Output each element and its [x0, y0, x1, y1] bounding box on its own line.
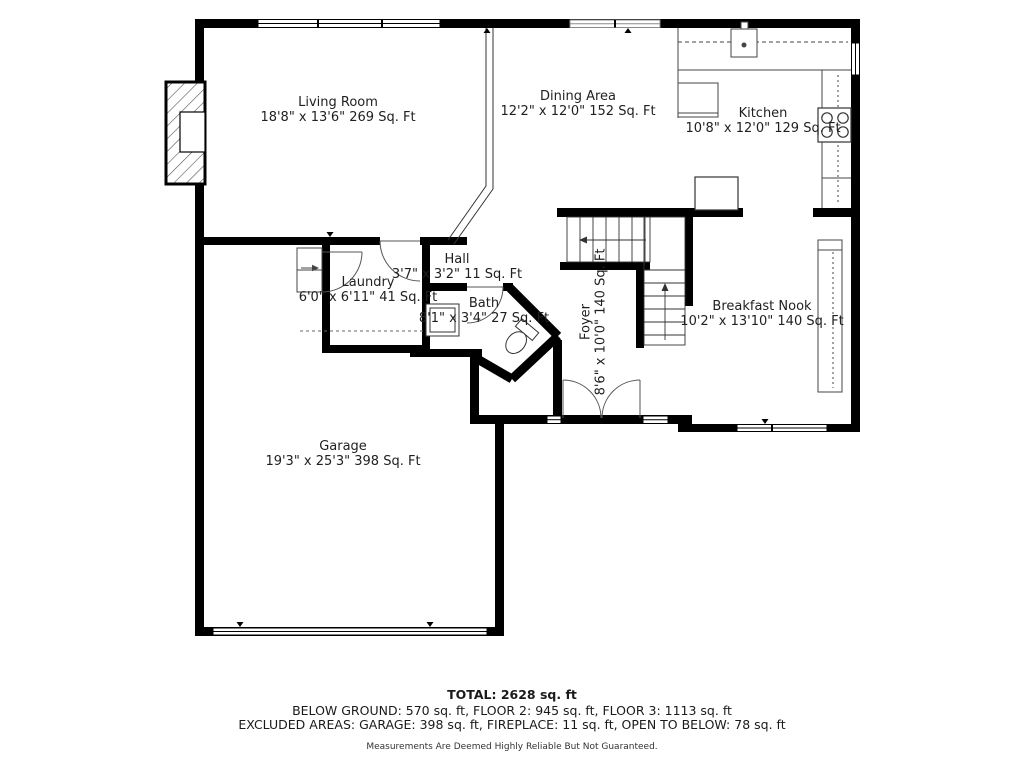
stairs-arrow-left [579, 237, 646, 244]
room-label-breakfast-nook: Breakfast Nook 10'2" x 13'10" 140 Sq. Ft [680, 300, 843, 329]
room-name: Kitchen [739, 106, 788, 121]
fireplace [166, 82, 205, 184]
garage-door [213, 628, 487, 635]
room-dims: 12'2" x 12'0" 152 Sq. Ft [500, 105, 655, 120]
nook-window [737, 425, 827, 432]
room-name: Garage [319, 439, 367, 454]
room-dims: 10'8" x 12'0" 129 Sq. Ft [685, 122, 840, 137]
room-name: Hall [445, 252, 470, 267]
room-dims: 19'3" x 25'3" 398 Sq. Ft [265, 455, 420, 470]
floor-plan-page: Living Room 18'8" x 13'6" 269 Sq. Ft Din… [0, 0, 1024, 768]
kitchen-window [852, 43, 860, 75]
living-room-window [258, 20, 440, 28]
floor-areas-text: BELOW GROUND: 570 sq. ft, FLOOR 2: 945 s… [0, 703, 1024, 718]
room-name: Living Room [298, 95, 378, 110]
railing [448, 28, 493, 244]
excluded-areas-text: EXCLUDED AREAS: GARAGE: 398 sq. ft, FIRE… [0, 717, 1024, 732]
room-label-dining-area: Dining Area 12'2" x 12'0" 152 Sq. Ft [500, 90, 655, 119]
stairs-arrow-up [662, 283, 669, 340]
room-label-foyer: Foyer 8'6" x 10'0" 140 Sq. Ft [580, 249, 609, 396]
total-area-text: TOTAL: 2628 sq. ft [0, 687, 1024, 702]
room-name: Breakfast Nook [712, 299, 811, 314]
room-dims: 6'0" x 6'11" 41 Sq. Ft [299, 291, 438, 306]
room-label-kitchen: Kitchen 10'8" x 12'0" 129 Sq. Ft [685, 107, 840, 136]
room-dims: 8'1" x 3'4" 27 Sq. Ft [419, 312, 549, 327]
entry-sidelight-left [547, 416, 561, 424]
room-label-garage: Garage 19'3" x 25'3" 398 Sq. Ft [265, 440, 420, 469]
refrigerator [695, 177, 738, 210]
disclaimer-text: Measurements Are Deemed Highly Reliable … [0, 742, 1024, 752]
room-dims: 8'6" x 10'0" 140 Sq. Ft [594, 249, 609, 396]
room-name: Dining Area [540, 89, 616, 104]
room-dims: 10'2" x 13'10" 140 Sq. Ft [680, 315, 843, 330]
dining-window [570, 20, 660, 28]
room-label-bath: Bath 8'1" x 3'4" 27 Sq. Ft [419, 297, 549, 326]
room-label-laundry: Laundry 6'0" x 6'11" 41 Sq. Ft [299, 276, 438, 305]
room-name: Laundry [342, 275, 395, 290]
entry-sidelight-right [643, 416, 668, 424]
room-label-living-room: Living Room 18'8" x 13'6" 269 Sq. Ft [260, 96, 415, 125]
room-name: Foyer [579, 304, 594, 340]
room-name: Bath [469, 296, 499, 311]
room-dims: 18'8" x 13'6" 269 Sq. Ft [260, 111, 415, 126]
